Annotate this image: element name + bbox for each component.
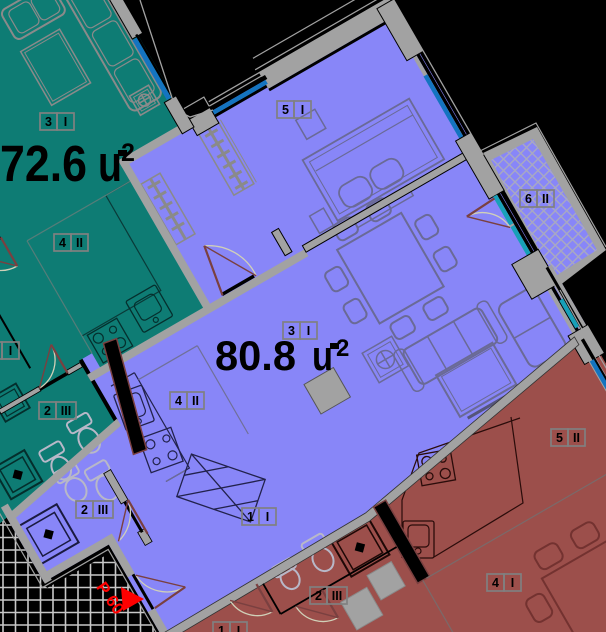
svg-text:5: 5 (556, 431, 563, 445)
svg-text:II: II (542, 192, 549, 206)
svg-text:III: III (61, 404, 71, 418)
svg-text:II: II (573, 431, 580, 445)
svg-text:4: 4 (59, 236, 66, 250)
svg-text:2: 2 (121, 139, 135, 167)
svg-text:2: 2 (81, 503, 88, 517)
svg-text:5: 5 (282, 103, 289, 117)
svg-text:I: I (307, 324, 310, 338)
svg-text:1: 1 (218, 624, 225, 632)
svg-text:2: 2 (336, 335, 349, 362)
svg-text:II: II (192, 394, 199, 408)
svg-text:3: 3 (45, 115, 52, 129)
svg-text:4: 4 (492, 576, 499, 590)
svg-text:4: 4 (175, 394, 182, 408)
svg-text:u: u (98, 135, 122, 192)
svg-text:I: I (237, 624, 240, 632)
svg-text:I: I (64, 115, 67, 129)
svg-text:1: 1 (247, 510, 254, 524)
svg-text:I: I (9, 344, 12, 358)
svg-text:2: 2 (315, 589, 322, 603)
svg-text:I: I (301, 103, 304, 117)
svg-text:III: III (332, 589, 342, 603)
svg-text:I: I (266, 510, 269, 524)
svg-text:72.6: 72.6 (0, 135, 87, 192)
svg-text:II: II (76, 236, 83, 250)
svg-text:6: 6 (525, 192, 532, 206)
svg-text:I: I (511, 576, 514, 590)
svg-text:80.8: 80.8 (215, 332, 296, 379)
svg-text:2: 2 (44, 404, 51, 418)
svg-text:III: III (98, 503, 108, 517)
svg-text:u: u (312, 332, 333, 379)
